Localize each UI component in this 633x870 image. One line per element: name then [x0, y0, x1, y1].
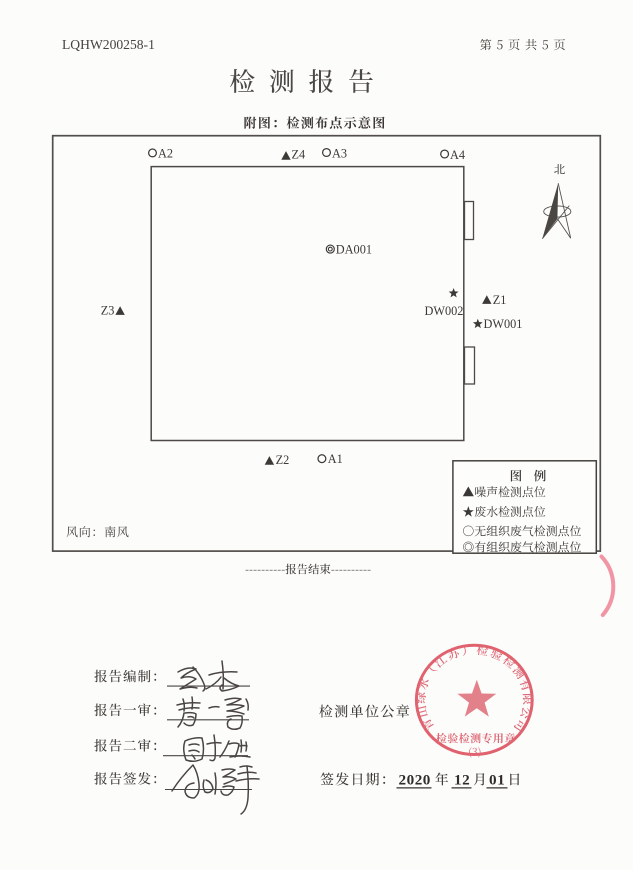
svg-text:A1: A1 — [328, 452, 343, 466]
svg-text:DW001: DW001 — [484, 317, 523, 331]
svg-text:LQHW200258-1: LQHW200258-1 — [62, 37, 155, 52]
svg-text:DA001: DA001 — [336, 243, 372, 257]
svg-text:Z3: Z3 — [101, 304, 115, 318]
svg-text:Z4: Z4 — [292, 147, 306, 161]
svg-text:01: 01 — [489, 771, 505, 788]
svg-text:Z1: Z1 — [493, 293, 507, 307]
svg-text:2020: 2020 — [399, 771, 431, 788]
svg-text:DW002: DW002 — [425, 304, 464, 318]
svg-text:A3: A3 — [332, 146, 347, 160]
svg-text:A4: A4 — [450, 148, 465, 162]
svg-text:Z2: Z2 — [276, 453, 290, 467]
svg-text:A2: A2 — [158, 146, 173, 160]
svg-text:12: 12 — [454, 771, 470, 788]
